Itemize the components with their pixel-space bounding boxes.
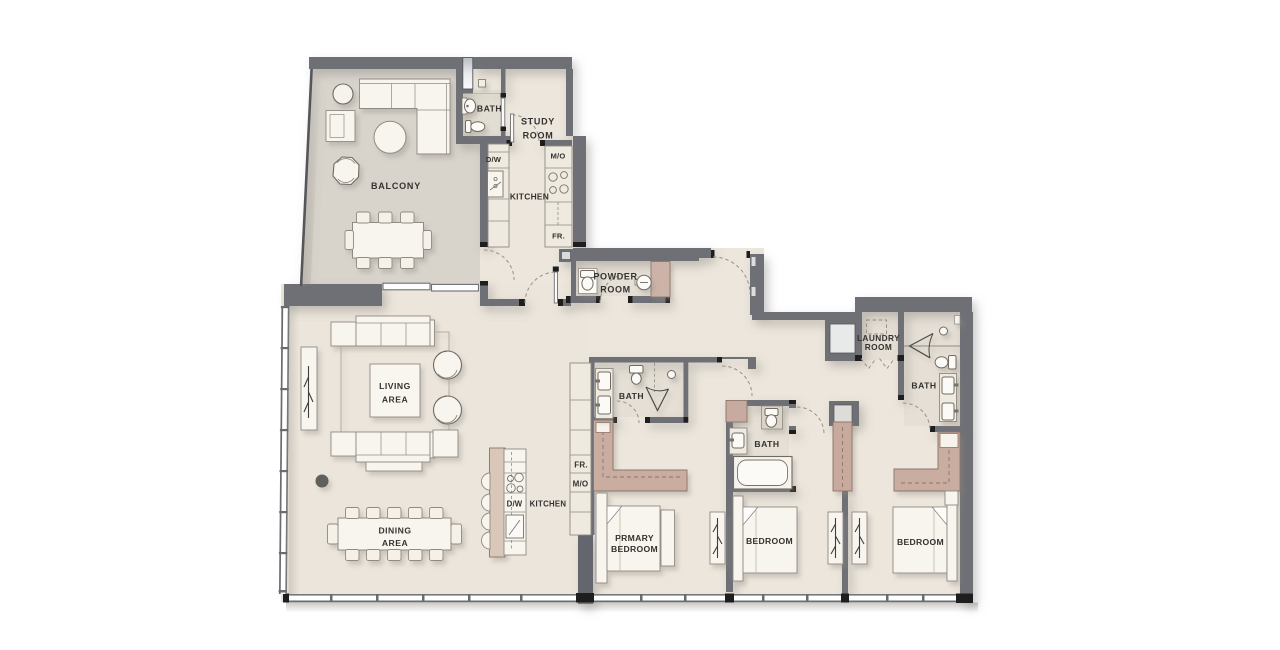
svg-text:PRMARY: PRMARY	[615, 533, 654, 543]
svg-text:ROOM: ROOM	[600, 285, 630, 295]
svg-text:POWDER: POWDER	[593, 272, 637, 282]
svg-text:D/W: D/W	[486, 155, 502, 164]
svg-text:DINING: DINING	[378, 526, 411, 536]
svg-text:AREA: AREA	[382, 395, 408, 405]
svg-text:BEDROOM: BEDROOM	[897, 537, 944, 547]
svg-text:M/O: M/O	[551, 152, 566, 161]
svg-text:ROOM: ROOM	[523, 131, 554, 141]
svg-text:BALCONY: BALCONY	[371, 181, 421, 191]
svg-text:M/O: M/O	[573, 480, 589, 489]
svg-text:FR.: FR.	[574, 461, 588, 470]
svg-text:BEDROOM: BEDROOM	[746, 536, 793, 546]
svg-text:D/W: D/W	[507, 500, 523, 509]
svg-text:BATH: BATH	[754, 439, 779, 449]
svg-text:FR.: FR.	[552, 232, 565, 241]
svg-text:BATH: BATH	[619, 391, 644, 401]
svg-text:KITCHEN: KITCHEN	[510, 192, 549, 202]
svg-text:BATH: BATH	[477, 104, 502, 114]
svg-text:ROOM: ROOM	[865, 342, 892, 352]
svg-text:BEDROOM: BEDROOM	[611, 544, 658, 554]
svg-text:STUDY: STUDY	[521, 117, 555, 127]
svg-text:KITCHEN: KITCHEN	[530, 500, 567, 509]
svg-text:BATH: BATH	[911, 381, 936, 391]
svg-text:LIVING: LIVING	[379, 381, 411, 391]
svg-text:AREA: AREA	[382, 538, 408, 548]
